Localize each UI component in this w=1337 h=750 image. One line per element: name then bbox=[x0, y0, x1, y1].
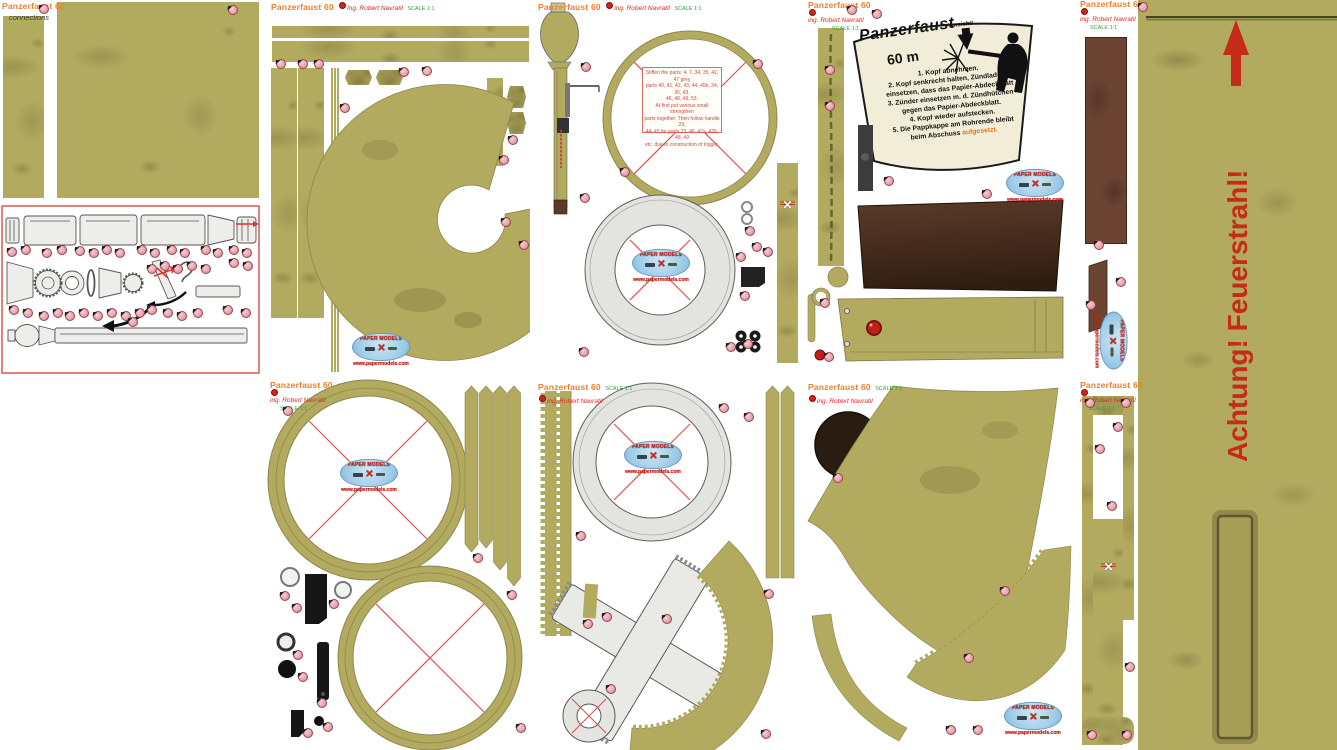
roundel-icon bbox=[809, 9, 816, 16]
roundel-icon bbox=[339, 2, 346, 9]
logo-title: PAPER MODELS bbox=[1005, 705, 1061, 711]
sheet-scale: SCALE 1:1 bbox=[1090, 24, 1143, 32]
sheet-title: Panzerfaust 60 bbox=[1080, 0, 1143, 8]
sheet-scale: SCALE 1:1 bbox=[674, 6, 701, 12]
logo-title: PAPER MODELS bbox=[1007, 172, 1063, 178]
sheet-header: Panzerfaust 60 ing. Robert Navratil SCAL… bbox=[270, 381, 333, 413]
sheet-author: ing. Robert Navratil bbox=[1080, 16, 1143, 24]
note-line: 44, 45 for parts 23, 46, 47a, 47b, 48, 4… bbox=[644, 129, 720, 142]
ring-part-small bbox=[563, 690, 615, 742]
sight-cross-icon: ✕ bbox=[780, 196, 795, 210]
tank-icon bbox=[1110, 325, 1114, 335]
roundel-icon bbox=[1081, 8, 1088, 15]
boat-icon bbox=[1040, 716, 1049, 719]
publisher-logo: PAPER MODELS ✕ www.papermodels.com bbox=[340, 459, 398, 494]
sheet-title: Panzerfaust 60 bbox=[808, 1, 871, 9]
logo-title: PAPER MODELS bbox=[1119, 313, 1125, 369]
publisher-logo: PAPER MODELS ✕ www.papermodels.com bbox=[624, 441, 682, 476]
note-line: etc. due to construction of trigger. bbox=[644, 142, 720, 149]
sheet-scale: SCALE 1:1 bbox=[875, 386, 902, 392]
boat-icon bbox=[376, 473, 385, 476]
logo-title: PAPER MODELS bbox=[353, 336, 409, 342]
sheet-scale: SCALE 1:1 bbox=[1088, 405, 1143, 413]
sheet-author: ing. Robert Navratil bbox=[817, 398, 873, 405]
logo-url: www.papermodels.com bbox=[1006, 197, 1064, 204]
sheet-header: Panzerfaust 60 ing. Robert Navratil SCAL… bbox=[271, 1, 435, 14]
sheet-header: Panzerfaust 60 connections bbox=[2, 0, 65, 23]
sheet-header: Panzerfaust 60 SCALE 1:1 ing. Robert Nav… bbox=[538, 381, 632, 407]
publisher-logo: PAPER MODELS ✕ www.papermodels.com bbox=[1006, 169, 1064, 204]
sheet-author: ing. Robert Navratil bbox=[347, 5, 403, 12]
logo-x-icon: ✕ bbox=[1029, 713, 1037, 723]
tank-icon bbox=[1019, 183, 1029, 187]
tank-icon bbox=[365, 347, 375, 351]
model-preview bbox=[540, 3, 599, 214]
sight-cross-icon: ✕ bbox=[1101, 558, 1116, 572]
sheet-title: Panzerfaust 60 bbox=[2, 1, 65, 11]
logo-title: PAPER MODELS bbox=[341, 462, 397, 468]
boat-icon bbox=[1042, 183, 1051, 186]
boat-icon bbox=[388, 347, 397, 350]
label-instructions: 1. Kopf abnehmen. 2. Kopf senkrecht halt… bbox=[872, 59, 1030, 145]
logo-title: PAPER MODELS bbox=[633, 252, 689, 258]
logo-x-icon: ✕ bbox=[1107, 337, 1117, 345]
part-strips bbox=[465, 386, 521, 586]
tank-icon bbox=[645, 263, 655, 267]
assembly-diagram bbox=[2, 206, 259, 373]
roundel-icon bbox=[606, 2, 613, 9]
sheet-title: Panzerfaust 60 bbox=[538, 382, 601, 392]
publisher-logo: PAPER MODELS ✕ www.papermodels.com bbox=[1004, 702, 1062, 737]
sheet-scale: SCALE 1:1 bbox=[407, 6, 434, 12]
small-parts bbox=[736, 202, 766, 353]
roundel-icon bbox=[271, 389, 278, 396]
logo-url: www.papermodels.com bbox=[624, 469, 682, 476]
roundel-icon bbox=[539, 395, 546, 402]
note-line: At first put various small strengthen bbox=[644, 103, 720, 116]
sheet-title: Panzerfaust 60 bbox=[270, 381, 333, 389]
tank-icon bbox=[1017, 716, 1027, 720]
papercraft-sheet-set: Panzerfaust 60 connections Panzerfaust 6… bbox=[0, 0, 1337, 750]
logo-url: www.papermodels.com bbox=[632, 277, 690, 284]
logo-x-icon: ✕ bbox=[657, 260, 665, 270]
tank-icon bbox=[353, 473, 363, 477]
boat-icon bbox=[660, 455, 669, 458]
logo-x-icon: ✕ bbox=[365, 470, 373, 480]
sheet-scale: SCALE 1:1 bbox=[280, 405, 333, 413]
sheet-author: ing. Robert Navratil bbox=[547, 398, 603, 405]
logo-x-icon: ✕ bbox=[649, 452, 657, 462]
note-line: parts 40, 41, 42, 43, 44, 45b, 34, 35, 4… bbox=[644, 83, 720, 96]
logo-url: www.papermodels.com bbox=[340, 487, 398, 494]
logo-url: www.papermodels.com bbox=[1093, 312, 1100, 370]
sheet-subtitle: connections bbox=[9, 13, 49, 22]
note-line: Stiffen the parts: 4, 7, 34, 35, 42, 47 … bbox=[644, 70, 720, 83]
sheet-author: ing. Robert Navratil bbox=[808, 17, 871, 25]
sheet-header: Panzerfaust 60 ing. Robert Navratil SCAL… bbox=[538, 1, 702, 14]
logo-url: www.papermodels.com bbox=[352, 361, 410, 368]
assembly-note-box: Stiffen the parts: 4, 7, 34, 35, 42, 47 … bbox=[642, 67, 722, 133]
publisher-logo: PAPER MODELS ✕ www.papermodels.com bbox=[632, 249, 690, 284]
sheet-title: Panzerfaust 60 bbox=[271, 2, 334, 12]
tank-icon bbox=[637, 455, 647, 459]
sheet-author: ing. Robert Navratil bbox=[614, 5, 670, 12]
boat-icon bbox=[1111, 347, 1114, 356]
sheet-author: ing. Robert Navratil bbox=[1080, 397, 1143, 405]
roundel-icon bbox=[809, 395, 816, 402]
logo-title: PAPER MODELS bbox=[625, 444, 681, 450]
logo-url: www.papermodels.com bbox=[1004, 730, 1062, 737]
publisher-logo: PAPER MODELS ✕ www.papermodels.com bbox=[1093, 312, 1128, 370]
logo-oval: PAPER MODELS ✕ bbox=[352, 333, 410, 361]
cone-blade-parts bbox=[808, 386, 1071, 741]
cone-development bbox=[307, 85, 583, 361]
note-line: parts together. Then follow handle 29, bbox=[644, 116, 720, 129]
publisher-logo: PAPER MODELS ✕ www.papermodels.com bbox=[352, 333, 410, 368]
sheet-header: Panzerfaust 60 ing. Robert Navratil SCAL… bbox=[1080, 0, 1143, 32]
roundel-icon bbox=[1081, 389, 1088, 396]
sheet-scale: SCALE 1:1 bbox=[605, 386, 632, 392]
sheet-title: Panzerfaust 60 bbox=[538, 2, 601, 12]
sheet-title: Panzerfaust 60 bbox=[808, 382, 871, 392]
sheet-author: ing. Robert Navratil bbox=[270, 397, 333, 405]
sheet-header: Panzerfaust 60 ing. Robert Navratil SCAL… bbox=[1080, 381, 1143, 413]
sheet-header: Panzerfaust 60 SCALE 1:1 ing. Robert Nav… bbox=[808, 381, 902, 407]
boat-icon bbox=[668, 263, 677, 266]
tube-warning-text: Achtung! Feuerstrahl! bbox=[1222, 170, 1254, 462]
sheet-title: Panzerfaust 60 bbox=[1080, 381, 1143, 389]
logo-x-icon: ✕ bbox=[1031, 180, 1039, 190]
logo-x-icon: ✕ bbox=[377, 344, 385, 354]
